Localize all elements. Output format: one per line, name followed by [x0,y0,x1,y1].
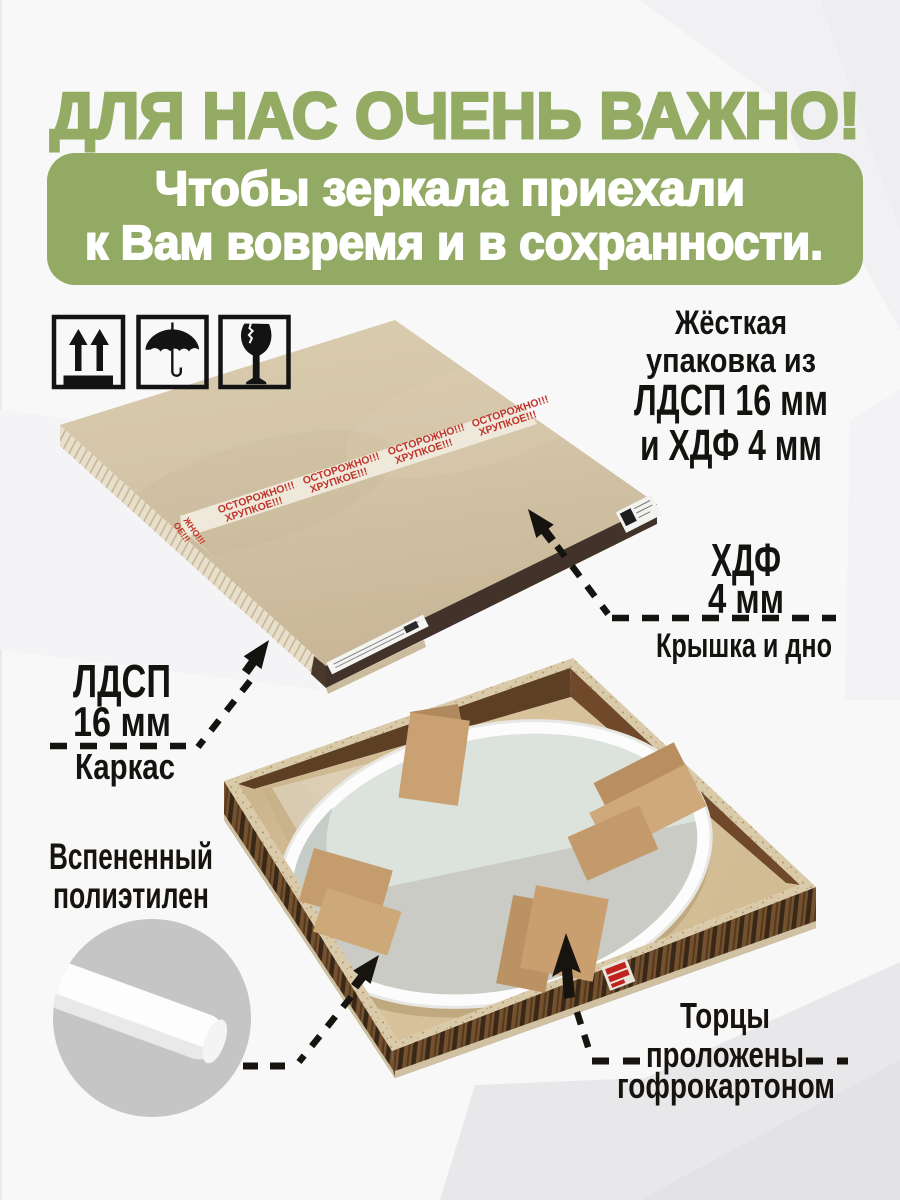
svg-text:Крышка и дно: Крышка и дно [656,627,832,665]
svg-text:16 мм: 16 мм [73,698,171,745]
svg-text:к Вам вовремя и в сохранности.: к Вам вовремя и в сохранности. [85,217,823,270]
svg-text:гофрокартоном: гофрокартоном [617,1065,835,1106]
svg-text:Торцы: Торцы [680,995,770,1036]
svg-text:Чтобы зеркала приехали: Чтобы зеркала приехали [155,163,745,216]
svg-text:Жёсткая: Жёсткая [674,304,787,342]
svg-text:ДЛЯ НАС ОЧЕНЬ ВАЖНО!: ДЛЯ НАС ОЧЕНЬ ВАЖНО! [50,79,860,152]
svg-text:и ХДФ 4 мм: и ХДФ 4 мм [640,421,822,470]
svg-text:Каркас: Каркас [75,746,175,787]
svg-text:упаковка из: упаковка из [646,342,816,380]
svg-text:полиэтилен: полиэтилен [53,875,209,916]
svg-text:Вспененный: Вспененный [49,836,213,877]
svg-text:ЛДСП 16 мм: ЛДСП 16 мм [634,376,828,425]
